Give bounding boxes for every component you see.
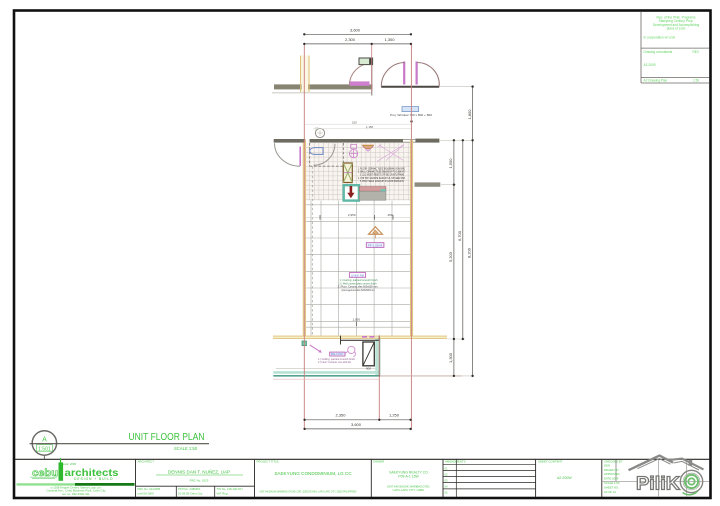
svg-text:VAT Reg.: VAT Reg. <box>217 491 229 495</box>
svg-text:In cooperation w/ LGU: In cooperation w/ LGU <box>644 36 676 40</box>
svg-text:SCALE 1:50: SCALE 1:50 <box>174 446 198 451</box>
svg-text:150: 150 <box>352 120 357 124</box>
svg-text:8,200: 8,200 <box>466 247 471 258</box>
svg-text:P09-A-1 16W: P09-A-1 16W <box>398 475 419 479</box>
svg-text:A: A <box>42 437 47 444</box>
svg-text:1,300: 1,300 <box>385 37 396 42</box>
svg-text:BALCONY: BALCONY <box>331 352 344 356</box>
svg-text:3,600: 3,600 <box>350 28 361 33</box>
svg-text:UNIT 640 BASAK-MARIBAGO ROAD C: UNIT 640 BASAK-MARIBAGO ROAD COR. QUEZON… <box>260 489 357 493</box>
svg-text:01-05-09 Cebu City: 01-05-09 Cebu City <box>178 491 203 495</box>
svg-text:tel. no. 032-2340-411: tel. no. 032-2340-411 <box>62 492 90 496</box>
svg-text:OWNER: OWNER <box>373 459 384 463</box>
svg-text:1,500: 1,500 <box>448 158 453 169</box>
svg-text:PRC No. 0123: PRC No. 0123 <box>190 479 209 483</box>
svg-text:DENNIS DAN T. NUÑEZ, UAP: DENNIS DAN T. NUÑEZ, UAP <box>168 469 230 475</box>
svg-text:3,600: 3,600 <box>351 422 362 427</box>
svg-text:TIN No. 218-160-871: TIN No. 218-160-871 <box>217 487 244 491</box>
svg-text:6,700: 6,700 <box>457 230 462 241</box>
svg-text:PRC No. 0123456: PRC No. 0123456 <box>138 487 161 491</box>
svg-text:5. PROV: MECH. EXHAUST & FLOOR: 5. PROV: MECH. EXHAUST & FLOOR DRAIN ETC <box>360 179 405 183</box>
svg-text:AMENDMENTS: AMENDMENTS <box>445 459 466 463</box>
svg-text:900: 900 <box>366 367 371 371</box>
svg-text:REV: REV <box>693 50 700 54</box>
svg-text:APPROVED: APPROVED <box>604 472 620 476</box>
svg-text:A2 200W: A2 200W <box>557 476 572 480</box>
svg-text:DDN: DDN <box>604 463 610 467</box>
svg-text:LAPU-LAPU CITY, CEBU: LAPU-LAPU CITY, CEBU <box>393 488 425 492</box>
svg-text:2,300: 2,300 <box>345 37 356 42</box>
svg-text:PiliK: PiliK <box>636 474 680 494</box>
svg-text:1,250: 1,250 <box>389 412 400 417</box>
svg-text:A2-2009: A2-2009 <box>644 63 656 67</box>
svg-text:1,150: 1,150 <box>366 125 373 129</box>
svg-text:05: 05 <box>445 490 448 494</box>
svg-text:SHEET NO.: SHEET NO. <box>604 485 619 489</box>
svg-text:2,950: 2,950 <box>348 213 356 217</box>
svg-text:PROJECT TITLE: PROJECT TITLE <box>257 459 279 463</box>
svg-text:plans of LGU: plans of LGU <box>667 26 686 30</box>
svg-text:FF-1.00 M: FF-1.00 M <box>368 243 382 247</box>
svg-text:Drawing consultants: Drawing consultants <box>644 50 673 54</box>
svg-text:2,350: 2,350 <box>336 412 347 417</box>
svg-text:LIVING RM: LIVING RM <box>351 273 364 277</box>
svg-text:1:50: 1:50 <box>693 79 699 83</box>
svg-text:DRAWN BY: DRAWN BY <box>604 468 619 472</box>
svg-text:A2 Drawing Plan: A2 Drawing Plan <box>644 79 668 83</box>
svg-text:SAEKYUNG CONDOMINIUM, LG CC: SAEKYUNG CONDOMINIUM, LG CC <box>274 471 352 476</box>
svg-text:ARCHITECT: ARCHITECT <box>138 459 155 463</box>
svg-text:DATE 2009: DATE 2009 <box>604 477 619 481</box>
svg-text:estd. 2005: estd. 2005 <box>63 462 77 466</box>
svg-text:1,800: 1,800 <box>467 109 472 120</box>
svg-text:02: 02 <box>445 472 448 476</box>
svg-text:(Homogenous tiles 600x600mm): (Homogenous tiles 600x600mm) <box>342 288 375 292</box>
svg-text:03: 03 <box>445 478 448 482</box>
svg-text:2.) Floor: Ceramic non-skid ti: 2.) Floor: Ceramic non-skid tile <box>318 360 351 364</box>
svg-text:1:501: 1:501 <box>38 446 51 452</box>
svg-text:SHEET CONTENT: SHEET CONTENT <box>538 459 563 463</box>
svg-text:1,300: 1,300 <box>448 352 453 363</box>
svg-text:A2 OF 12: A2 OF 12 <box>604 490 616 494</box>
svg-text:01: 01 <box>445 467 448 471</box>
svg-text:DESIGN + BUILD: DESIGN + BUILD <box>74 477 113 481</box>
svg-text:1,050: 1,050 <box>353 318 361 322</box>
svg-text:04: 04 <box>445 484 448 488</box>
svg-text:UNIT FLOOR PLAN: UNIT FLOOR PLAN <box>129 432 205 443</box>
svg-text:450: 450 <box>388 213 393 217</box>
svg-text:PTR No. 2489661: PTR No. 2489661 <box>178 487 201 491</box>
svg-text:5,203: 5,203 <box>448 251 453 262</box>
svg-text:until 06-2009: until 06-2009 <box>138 491 155 495</box>
